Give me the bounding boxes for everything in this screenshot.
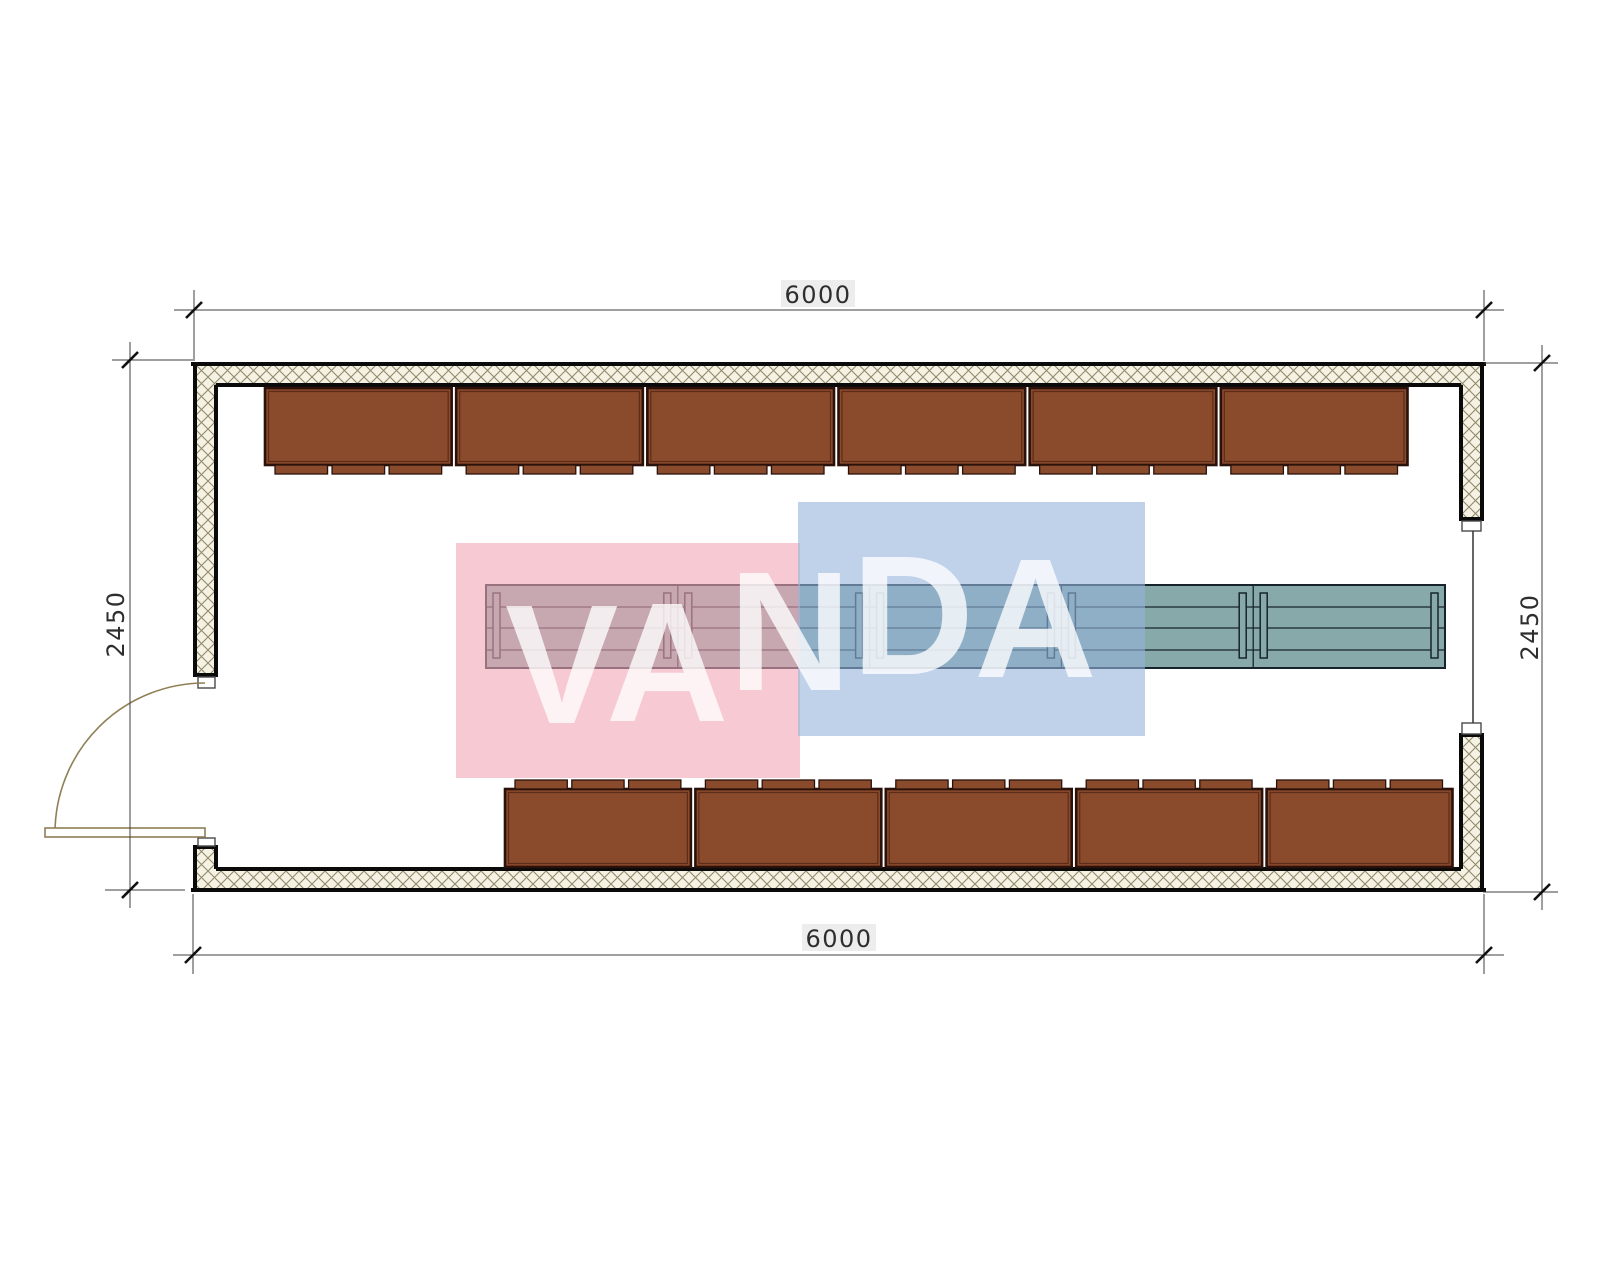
floor-plan-drawing: 6000 6000 2450 2450 VANDA (0, 0, 1600, 1280)
dim-left-label: 2450 (102, 590, 130, 657)
cabinet-unit (1221, 388, 1408, 465)
cabinet-unit (1030, 388, 1217, 465)
cabinet-unit (505, 789, 691, 867)
cabinet-unit (456, 388, 643, 465)
cabinet-tab (953, 780, 1005, 789)
cabinet-unit (1267, 789, 1453, 867)
table-leg (1431, 593, 1438, 658)
cabinet-tab (1231, 465, 1284, 474)
cabinet-tab (657, 465, 710, 474)
cabinet-unit (1076, 789, 1262, 867)
door-leaf (45, 828, 205, 837)
cabinet-tab (515, 780, 567, 789)
cabinet-tab (275, 465, 328, 474)
watermark: VANDA (456, 502, 1145, 778)
cabinet-tab (705, 780, 757, 789)
cabinet-tab (1040, 465, 1093, 474)
cabinet-tab (1288, 465, 1341, 474)
cabinet-unit (886, 789, 1072, 867)
cabinet-tab (896, 780, 948, 789)
table-leg (1239, 593, 1246, 658)
dim-right-label: 2450 (1516, 593, 1544, 660)
cabinet-tab (762, 780, 814, 789)
cabinet-tab (963, 465, 1016, 474)
dim-bottom-label: 6000 (805, 925, 872, 953)
cabinet-tab (819, 780, 871, 789)
cabinet-tab (389, 465, 442, 474)
cabinet-tab (1277, 780, 1329, 789)
cabinet-tab (1097, 465, 1150, 474)
cabinet-tab (523, 465, 576, 474)
cabinet-tab (1390, 780, 1442, 789)
cabinet-tab (1009, 780, 1061, 789)
door-jamb-bottom (198, 838, 215, 846)
top-cabinet-row (265, 388, 1408, 474)
cabinet-tab (1200, 780, 1252, 789)
cabinet-unit (265, 388, 452, 465)
cabinet-tab (332, 465, 385, 474)
cabinet-tab (1333, 780, 1385, 789)
table-leg (1260, 593, 1267, 658)
cabinet-unit (695, 789, 881, 867)
cabinet-tab (1154, 465, 1207, 474)
cabinet-tab (580, 465, 633, 474)
door (45, 683, 205, 837)
cabinet-tab (771, 465, 824, 474)
cabinet-tab (1086, 780, 1138, 789)
cabinet-tab (906, 465, 959, 474)
cabinet-tab (572, 780, 624, 789)
window-jamb-bottom (1462, 723, 1481, 734)
bottom-cabinet-row (505, 780, 1453, 867)
dim-top-label: 6000 (784, 281, 851, 309)
cabinet-unit (647, 388, 834, 465)
cabinet-tab (466, 465, 519, 474)
cabinet-tab (1345, 465, 1398, 474)
cabinet-tab (714, 465, 767, 474)
floor-plan-canvas: 6000 6000 2450 2450 VANDA (0, 0, 1600, 1280)
window-jamb-top (1462, 521, 1481, 531)
cabinet-tab (629, 780, 681, 789)
cabinet-unit (839, 388, 1026, 465)
cabinet-tab (1143, 780, 1195, 789)
cabinet-tab (849, 465, 902, 474)
